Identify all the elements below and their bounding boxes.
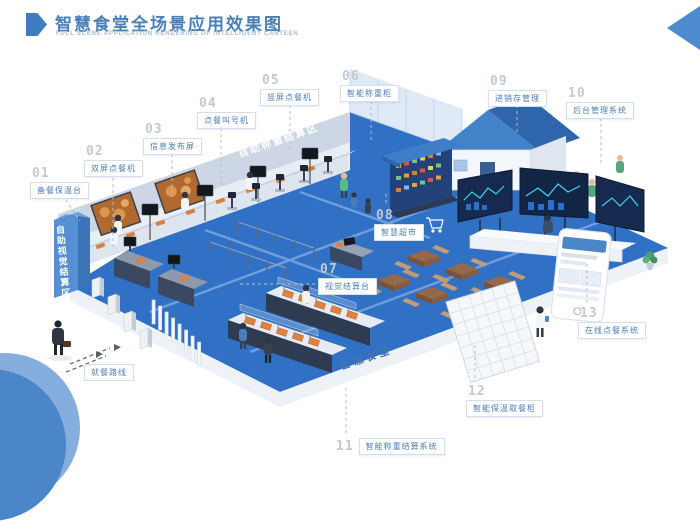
callout-number: 09 (488, 74, 547, 89)
worker-figure (588, 179, 596, 197)
callout-08: 08 智慧超市 (374, 208, 424, 241)
callout-number: 10 (566, 86, 634, 101)
callout-number: 11 (334, 439, 354, 454)
callout-09: 09 进销存管理 (488, 74, 547, 107)
phone-user-figure (536, 306, 550, 337)
callout-02: 02 双屏点餐机 (84, 144, 143, 177)
visitor-figure (52, 320, 71, 355)
callout-number: 08 (374, 208, 424, 223)
callout-number: 06 (340, 69, 399, 84)
callout-label: 智能称重结算系统 (359, 438, 445, 455)
callout-05: 05 竖屏点餐机 (260, 73, 319, 106)
callout-07: 07 视觉结算台 (318, 262, 377, 295)
callout-11: 11 智能称重结算系统 (334, 438, 445, 455)
callout-label: 备餐保温台 (30, 182, 89, 199)
page-subtitle: FULL SCENE APPLICATION RENDERING OF INTE… (56, 31, 299, 37)
callout-10: 10 后台管理系统 (566, 86, 634, 119)
callout-13: 13 在线点餐系统 (578, 306, 646, 339)
callout-label: 智能保温取餐柜 (466, 400, 543, 417)
corner-triangle-decor (667, 6, 700, 50)
callout-label: 智能称重柜 (340, 85, 399, 102)
callout-label: 双屏点餐机 (84, 160, 143, 177)
route-dashes (70, 348, 110, 364)
cashier-figure (110, 227, 118, 245)
staff-figure (302, 285, 310, 303)
callout-label: 竖屏点餐机 (260, 89, 319, 106)
callout-label: 点餐叫号机 (197, 112, 256, 129)
callout-number: 05 (260, 73, 319, 88)
callout-label: 视觉结算台 (318, 278, 377, 295)
callout-number: 03 (143, 122, 202, 137)
warehouse-window (454, 160, 467, 171)
callout-label: 信息发布屏 (143, 138, 202, 155)
route-arrowhead (114, 344, 121, 351)
callout-number: 02 (84, 144, 143, 159)
callout-number: 07 (318, 262, 377, 277)
callout-04: 04 点餐叫号机 (197, 96, 256, 129)
callout-01: 01 备餐保温台 (30, 166, 89, 199)
callout-03: 03 信息发布屏 (143, 122, 202, 155)
callout-label: 智慧超市 (374, 224, 424, 241)
staff-figure (181, 192, 189, 210)
callout-label: 后台管理系统 (566, 102, 634, 119)
callout-label: 进销存管理 (488, 90, 547, 107)
callout-number: 13 (578, 306, 646, 321)
dining-route-label: 就餐路线 (84, 364, 134, 381)
callout-06: 06 智能称重柜 (340, 69, 399, 102)
callout-number: 01 (30, 166, 89, 181)
supervisor-figure (616, 155, 624, 173)
callout-12: 12 智能保温取餐柜 (466, 384, 543, 417)
briefcase (63, 341, 71, 347)
callout-label: 在线点餐系统 (578, 322, 646, 339)
callout-number: 12 (466, 384, 543, 399)
callout-number: 04 (197, 96, 256, 111)
